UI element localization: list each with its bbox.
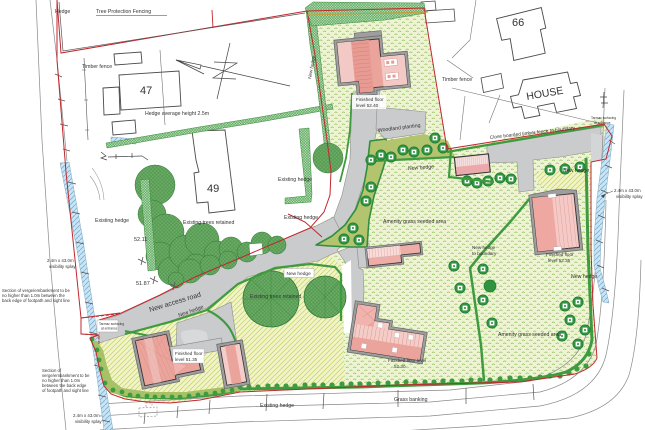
svg-text:New hedge: New hedge <box>287 271 312 277</box>
svg-text:Finished floor level: Finished floor level <box>388 358 426 363</box>
svg-text:back edge of footpath and sigh: back edge of footpath and sight line <box>2 298 70 303</box>
svg-text:Timber fence: Timber fence <box>442 77 472 83</box>
svg-text:Hedge average height 2.5m: Hedge average height 2.5m <box>145 111 209 117</box>
svg-text:Finished floor: Finished floor <box>546 252 574 257</box>
svg-text:Tree Protection Fencing: Tree Protection Fencing <box>96 9 151 15</box>
svg-text:Existing trees retained: Existing trees retained <box>183 220 234 226</box>
svg-text:Existing hedge: Existing hedge <box>278 177 312 183</box>
svg-text:Finished floor: Finished floor <box>175 351 203 356</box>
svg-text:52.11: 52.11 <box>134 237 147 243</box>
svg-text:Amenity grass seeded area: Amenity grass seeded area <box>383 219 446 225</box>
svg-text:New hedge: New hedge <box>472 245 496 250</box>
svg-text:Tarmac surfacing: Tarmac surfacing <box>591 116 616 120</box>
svg-text:Finished floor: Finished floor <box>356 97 384 102</box>
svg-text:level 52.40: level 52.40 <box>356 103 379 108</box>
svg-text:New hedge: New hedge <box>563 168 589 174</box>
svg-text:to boundary: to boundary <box>472 251 497 256</box>
svg-text:level 51.35: level 51.35 <box>175 357 198 362</box>
svg-text:2.4m x 43.0m: 2.4m x 43.0m <box>614 188 641 193</box>
svg-text:47: 47 <box>140 85 152 97</box>
svg-text:level 52.35: level 52.35 <box>548 258 571 263</box>
svg-text:51.87: 51.87 <box>136 281 150 287</box>
svg-text:Hedge: Hedge <box>55 9 70 15</box>
svg-text:of footpath and sight line: of footpath and sight line <box>42 388 89 393</box>
svg-text:Amenity grass seeded area: Amenity grass seeded area <box>498 332 561 338</box>
svg-text:at entrance: at entrance <box>101 327 118 331</box>
svg-text:Timber fence: Timber fence <box>82 64 112 70</box>
svg-text:Tarmac surfacing: Tarmac surfacing <box>99 322 124 326</box>
svg-text:New hedge: New hedge <box>571 274 597 280</box>
svg-text:49: 49 <box>207 183 219 195</box>
svg-text:Grass banking: Grass banking <box>394 397 428 403</box>
svg-text:at entrance: at entrance <box>594 121 611 125</box>
svg-text:52.30: 52.30 <box>394 364 406 369</box>
svg-text:Existing hedge: Existing hedge <box>260 403 294 409</box>
svg-text:2.4m x 43.0m: 2.4m x 43.0m <box>47 258 74 263</box>
svg-text:Existing hedge: Existing hedge <box>284 215 318 221</box>
svg-text:visibility splay: visibility splay <box>75 419 102 424</box>
svg-text:2.4m x 43.0m: 2.4m x 43.0m <box>73 413 100 418</box>
svg-text:visibility splay: visibility splay <box>616 194 643 199</box>
svg-text:visibility splay: visibility splay <box>49 264 76 269</box>
svg-text:66: 66 <box>512 17 524 29</box>
svg-text:Existing trees retained: Existing trees retained <box>250 294 301 300</box>
svg-text:Existing hedge: Existing hedge <box>95 218 129 224</box>
